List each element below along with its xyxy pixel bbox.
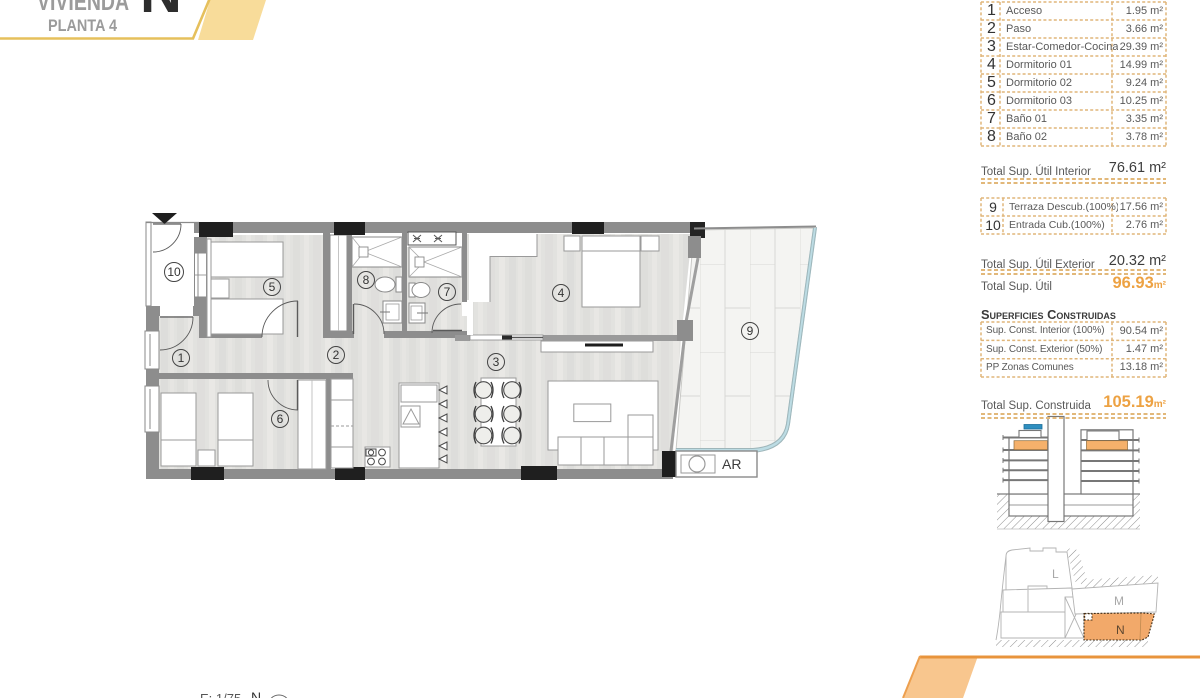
svg-text:E: 1/75: E: 1/75: [200, 691, 241, 698]
svg-text:1: 1: [178, 351, 185, 365]
svg-text:7: 7: [444, 285, 451, 299]
svg-text:PLANTA 4: PLANTA 4: [48, 17, 117, 35]
svg-text:6: 6: [277, 412, 284, 426]
svg-text:8: 8: [363, 273, 370, 287]
svg-text:AR: AR: [722, 456, 741, 472]
svg-text:9: 9: [747, 324, 754, 338]
svg-text:10: 10: [167, 265, 181, 279]
svg-text:M: M: [1114, 594, 1124, 608]
svg-text:VIVIENDA: VIVIENDA: [37, 0, 129, 16]
svg-text:2: 2: [333, 348, 340, 362]
svg-text:N: N: [251, 689, 261, 698]
svg-text:3: 3: [493, 355, 500, 369]
svg-text:L: L: [1052, 567, 1059, 581]
svg-text:5: 5: [269, 280, 276, 294]
svg-text:N: N: [1116, 623, 1125, 637]
svg-text:N: N: [140, 0, 182, 25]
svg-text:4: 4: [558, 286, 565, 300]
